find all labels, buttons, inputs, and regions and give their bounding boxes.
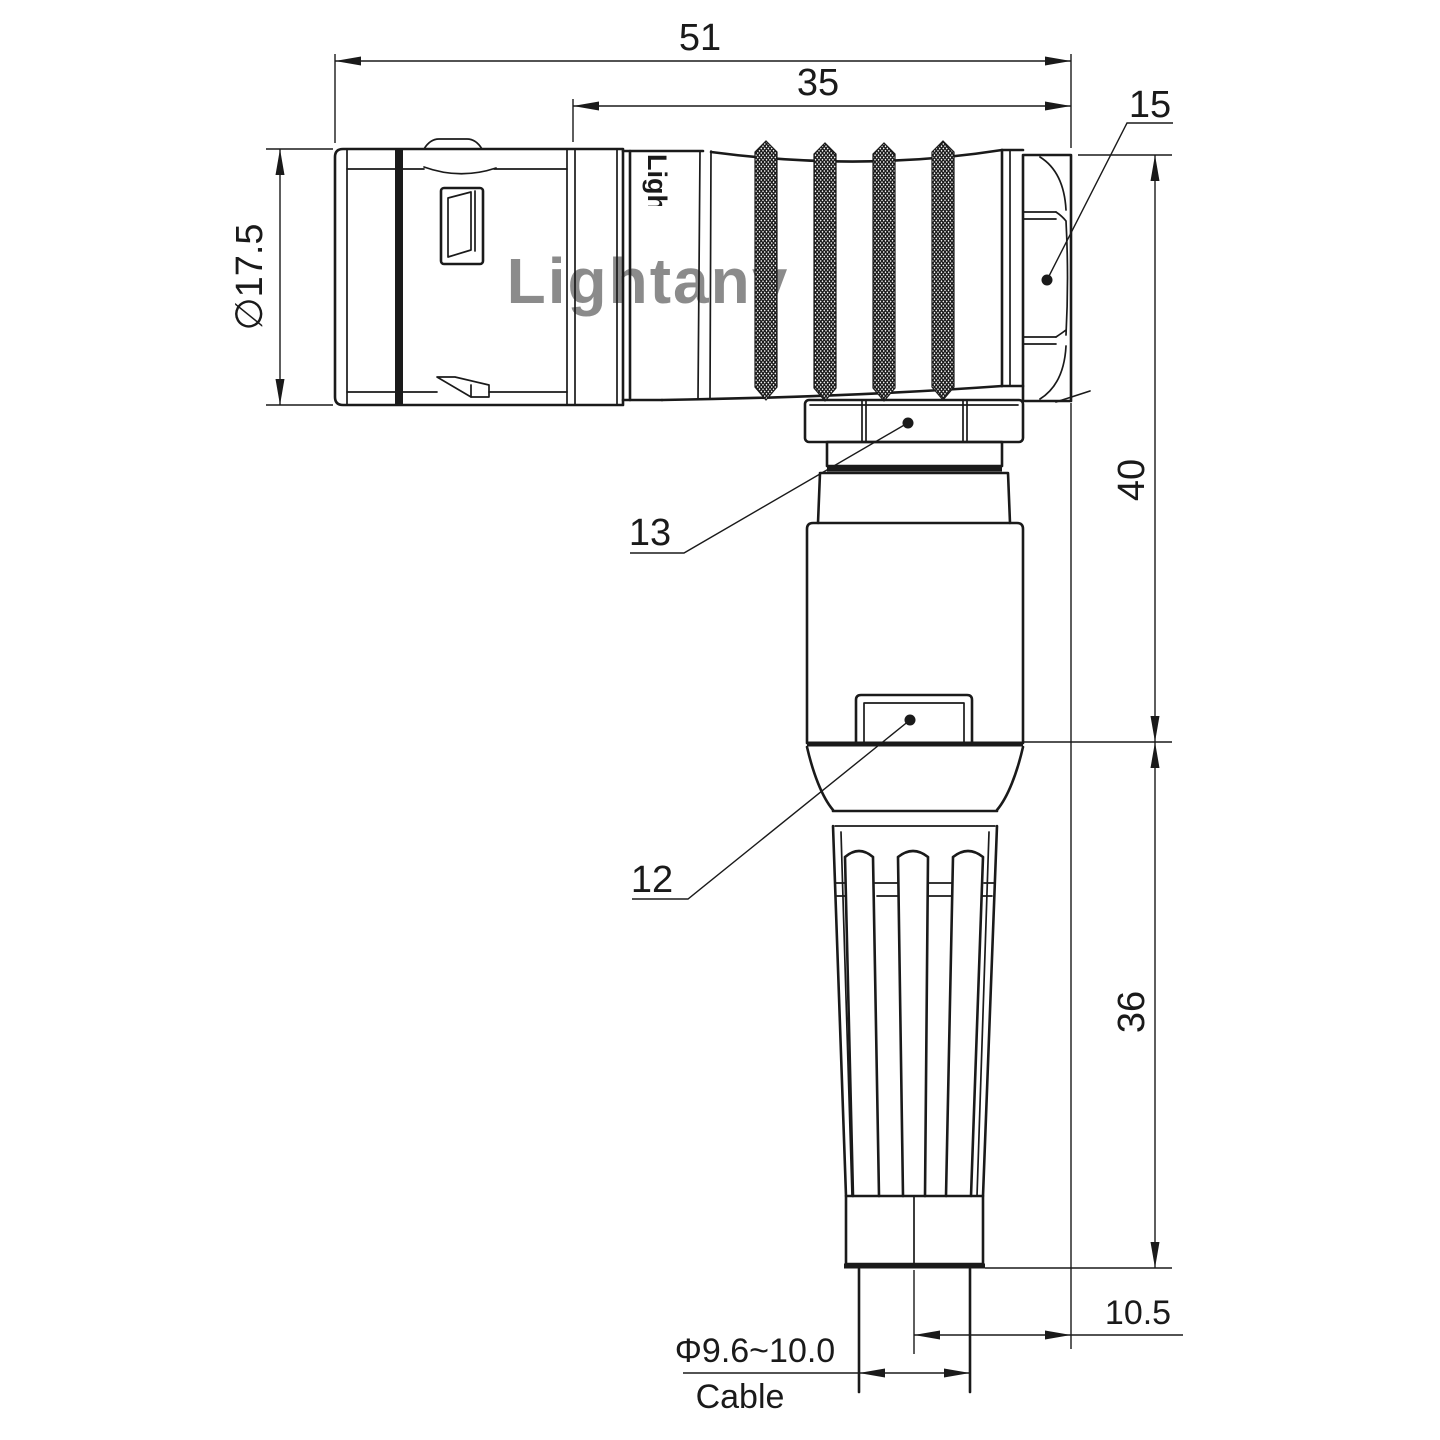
boot-shoulder — [807, 747, 1023, 810]
dim-total-length: 51 — [335, 17, 1071, 148]
leader-hex-nut-dot — [1042, 275, 1053, 286]
knurl-band — [873, 143, 895, 401]
watermark-text: Lightany — [507, 245, 790, 317]
collar-facets — [862, 400, 967, 442]
hex-facet-line-lower — [1023, 337, 1056, 344]
elbow-collar-stack — [805, 400, 1023, 523]
dim-rear-length: 35 — [573, 62, 1071, 142]
cable-caption: Cable — [696, 1378, 785, 1416]
boot-fin — [898, 851, 928, 1196]
body-outline — [807, 523, 1023, 743]
hex-nut — [1023, 155, 1090, 402]
dim-total-length-value: 51 — [679, 17, 721, 59]
knurl-band — [814, 143, 836, 401]
hex-facet-line-upper — [1023, 212, 1056, 219]
dim-plug-diameter: ∅17.5 — [229, 149, 333, 405]
coupling-ring-line — [710, 151, 711, 399]
keyway-bump — [424, 139, 482, 149]
leader-backnut-label: 13 — [629, 512, 671, 554]
technical-drawing-page: Lightany — [0, 0, 1440, 1440]
leader-backnut-dot — [903, 418, 914, 429]
dim-rear-length-value: 35 — [797, 62, 839, 104]
knurl-band — [755, 141, 777, 400]
leader-body-label: 12 — [631, 859, 673, 901]
leader-hex-nut-label: 15 — [1129, 84, 1171, 126]
dim-elbow-height: 40 — [1023, 155, 1172, 742]
dim-elbow-height-value: 40 — [1111, 459, 1153, 501]
watermark: Lightany — [507, 245, 790, 317]
end-ring-edges — [1002, 150, 1023, 386]
coupling-ring-line — [698, 151, 700, 399]
dim-cable-offset-value: 10.5 — [1105, 1294, 1171, 1332]
key-window-inner — [448, 192, 471, 257]
connector-technical-drawing: Lightany — [0, 0, 1440, 1440]
boot-fin — [946, 851, 983, 1196]
latch-tab — [437, 377, 489, 397]
keyway-underline — [424, 167, 496, 174]
dim-plug-diameter-value: ∅17.5 — [229, 223, 271, 330]
leader-backnut: 13 — [629, 418, 914, 555]
dim-cable-diameter: Φ9.6~10.0 Cable — [675, 1332, 970, 1416]
dim-cable-diameter-value: Φ9.6~10.0 — [675, 1332, 835, 1370]
collar-ring — [805, 400, 1023, 442]
gland-ring — [818, 473, 1010, 523]
boot-cone-inner-edges — [841, 832, 989, 1196]
strain-relief-boot — [807, 747, 1023, 1266]
hex-rear-chamfer — [1056, 391, 1090, 402]
dim-boot-height-value: 36 — [1111, 991, 1153, 1033]
dim-boot-height: 36 — [985, 742, 1172, 1268]
vertical-body — [807, 523, 1023, 744]
leader-body-dot — [905, 715, 916, 726]
dim-cable-offset: 10.5 — [914, 403, 1183, 1354]
knurl-band — [932, 141, 954, 400]
plug-seal-band — [395, 150, 403, 404]
